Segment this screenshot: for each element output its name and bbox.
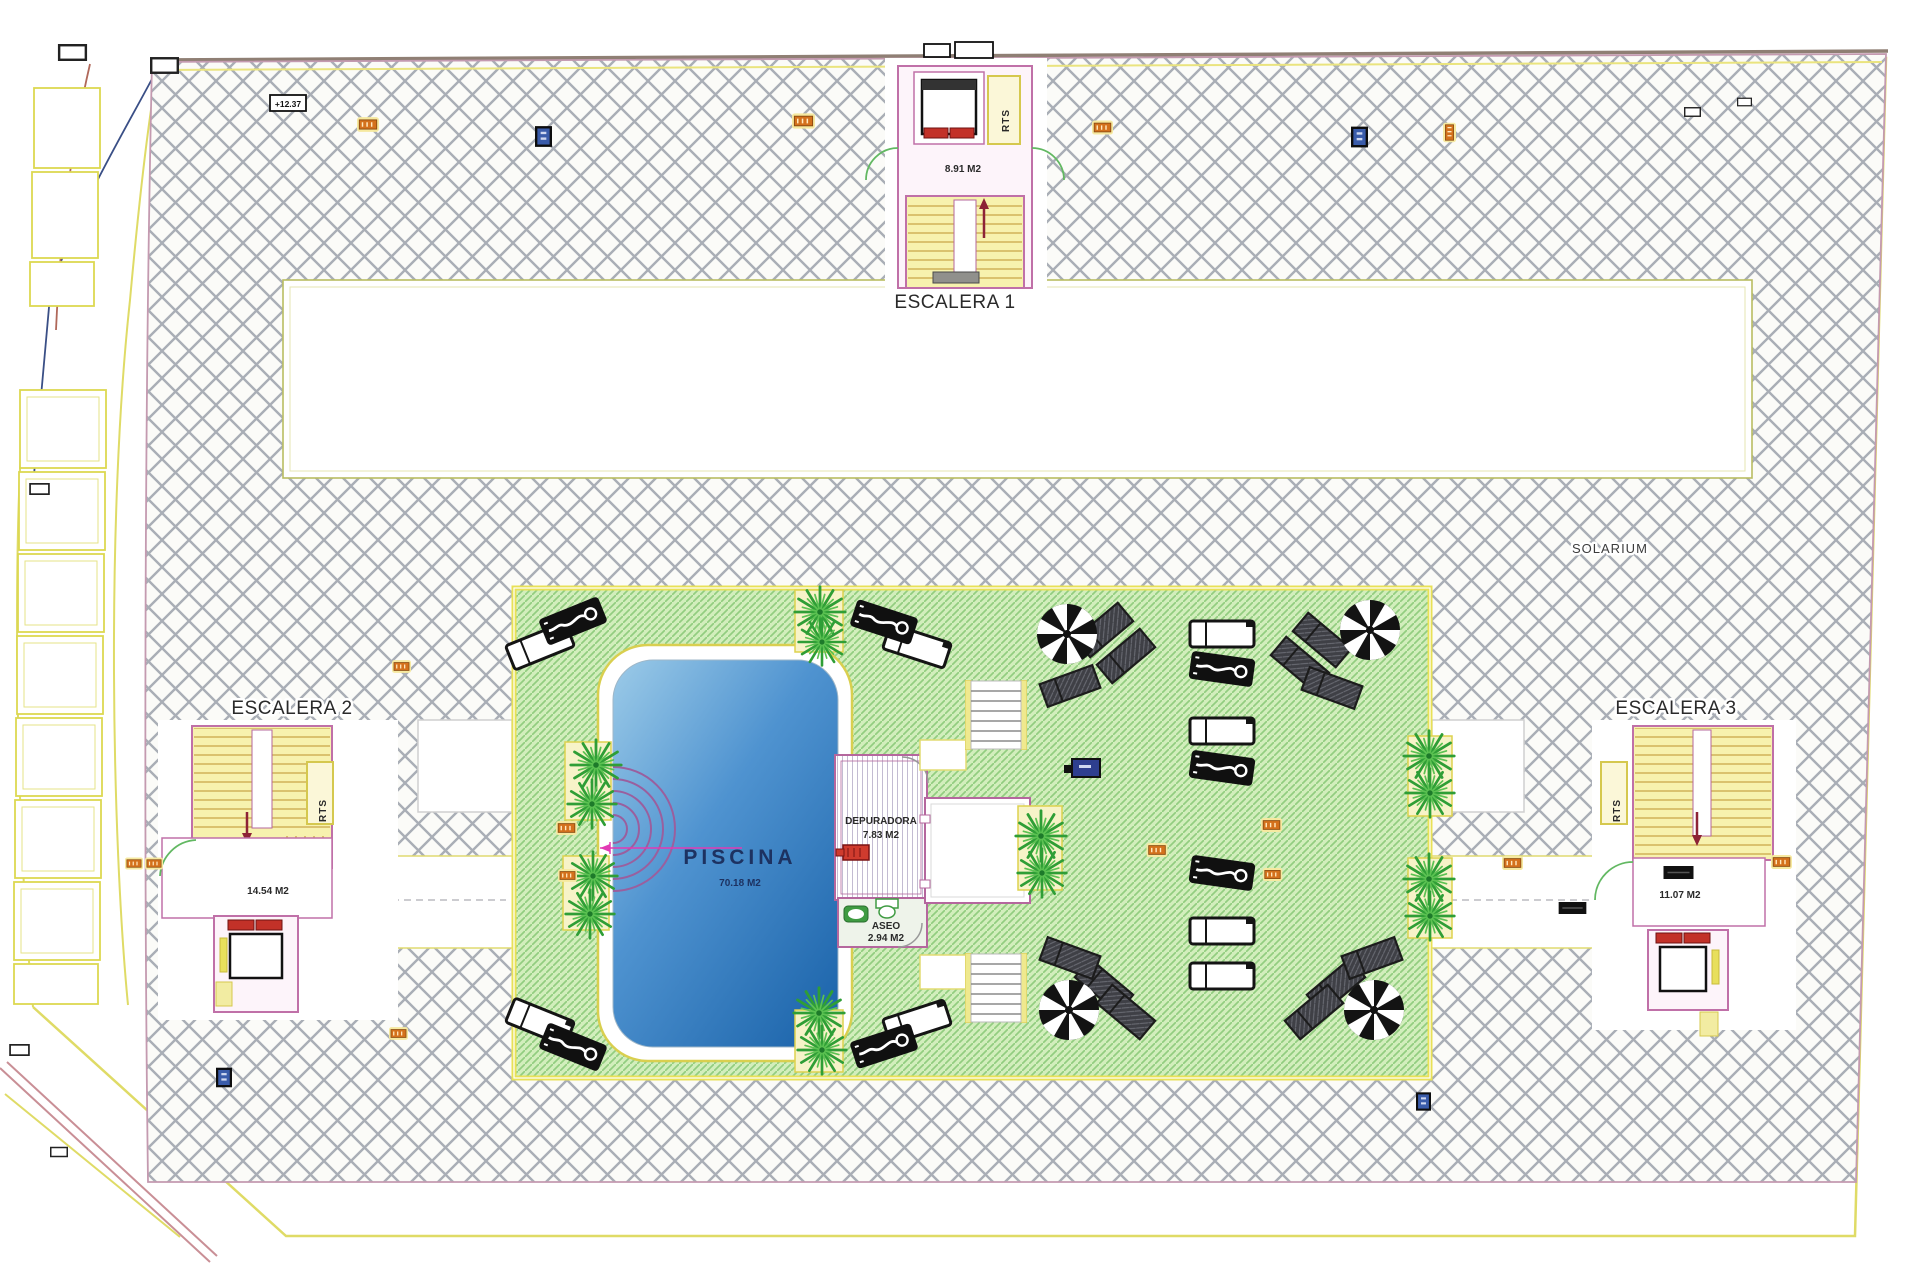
- elevator-icon: [1648, 930, 1728, 1010]
- boundary-tick: [59, 45, 86, 60]
- elevation-marker: +12.37: [270, 95, 306, 111]
- escalera-3: ESCALERA 3 RTS 11.07 M2: [1592, 698, 1796, 1036]
- escalera1-area-label: 8.91 M2: [945, 164, 982, 175]
- aseo-area-label: 2.94 M2: [868, 933, 905, 944]
- steps-bottom-icon: [965, 953, 1027, 1023]
- vent-marker-icon: [1261, 818, 1282, 832]
- stair-flight-icon: [1633, 726, 1773, 860]
- depuradora-area-label: 7.83 M2: [863, 830, 900, 841]
- elevation-value: +12.37: [275, 99, 302, 109]
- escalera2-landing: [162, 838, 332, 918]
- landing-pad: [1700, 1012, 1718, 1036]
- parasol-icon: [1037, 604, 1097, 664]
- vent-marker-icon: [1502, 856, 1523, 870]
- vent-marker-icon: [125, 858, 143, 870]
- sun-lounger-icon: [1190, 963, 1254, 989]
- escalera2-area-label: 14.54 M2: [247, 886, 289, 897]
- landing-pad: [216, 982, 232, 1006]
- escalera3-title: ESCALERA 3: [1615, 698, 1736, 719]
- vent-marker-icon: [145, 858, 163, 870]
- escalera2-title: ESCALERA 2: [231, 698, 352, 719]
- roof-plan-drawing: RTS 8.91 M2 ESCALERA 1 ESCALERA 2 RTS 14…: [0, 0, 1920, 1280]
- boundary-tick: [1738, 98, 1752, 106]
- boundary-tick: [1685, 108, 1701, 117]
- vent-marker-icon: [392, 660, 411, 673]
- piscina-label: PISCINA: [683, 846, 796, 869]
- drain-marker-icon: [216, 1068, 232, 1088]
- steps-top-icon: [965, 680, 1027, 750]
- rts-label-2: RTS: [318, 799, 329, 822]
- sun-lounger-icon: [1190, 918, 1254, 944]
- stair-flight-icon: [906, 196, 1024, 288]
- piscina-area-label: 70.18 M2: [719, 878, 761, 889]
- vent-marker-icon: [1263, 868, 1283, 881]
- elevation-label-icon: [1664, 866, 1694, 879]
- drain-marker-icon: [1416, 1092, 1431, 1110]
- solarium-label: SOLARIUM: [1572, 541, 1648, 556]
- boundary-tick: [151, 58, 178, 73]
- roof-void: [283, 280, 1752, 478]
- vent-marker-icon: [792, 113, 815, 128]
- roof-machine-icon: [955, 42, 993, 58]
- depuradora-label: DEPURADORA: [845, 816, 917, 827]
- escalera-1: RTS 8.91 M2 ESCALERA 1: [866, 42, 1064, 313]
- rts-label-3: RTS: [1612, 799, 1623, 822]
- vent-marker-icon: [357, 117, 379, 132]
- skylight-left: [418, 720, 512, 812]
- sun-lounger-icon: [1190, 718, 1254, 744]
- aseo-label: ASEO: [872, 921, 901, 932]
- drain-marker-icon: [535, 126, 552, 147]
- depuradora-room: [835, 755, 928, 900]
- rts-label-1: RTS: [1001, 109, 1012, 132]
- vent-marker-icon: [1147, 843, 1168, 857]
- parasol-icon: [1039, 980, 1099, 1040]
- boundary-tick: [30, 484, 49, 494]
- pergola-square: [920, 798, 1030, 903]
- boundary-tick: [10, 1045, 29, 1055]
- parasol-icon: [1344, 980, 1404, 1040]
- escalera3-area-label: 11.07 M2: [1659, 890, 1701, 901]
- boundary-tick: [51, 1148, 68, 1157]
- roof-machine-icon: [924, 44, 950, 57]
- vent-marker-icon: [1771, 855, 1792, 869]
- escalera1-title: ESCALERA 1: [894, 292, 1015, 313]
- vent-marker-icon: [556, 821, 577, 835]
- parasol-icon: [1340, 600, 1400, 660]
- toilet-icon: [876, 899, 898, 918]
- elevation-label-icon: [1559, 902, 1587, 914]
- vent-marker-icon: [558, 869, 577, 882]
- vent-marker-icon: [1092, 121, 1113, 135]
- drain-marker-icon: [1351, 127, 1368, 148]
- sink-icon: [844, 906, 868, 922]
- floorplan-canvas: RTS 8.91 M2 ESCALERA 1 ESCALERA 2 RTS 14…: [0, 0, 1920, 1280]
- vent-marker-icon: [389, 1027, 408, 1040]
- escalera-2: ESCALERA 2 RTS 14.54 M2: [158, 698, 398, 1020]
- elevator-icon: [914, 72, 984, 144]
- sun-lounger-icon: [1190, 621, 1254, 647]
- vent-marker-icon: [1443, 123, 1456, 143]
- lower-floor-balconies: [14, 88, 106, 1004]
